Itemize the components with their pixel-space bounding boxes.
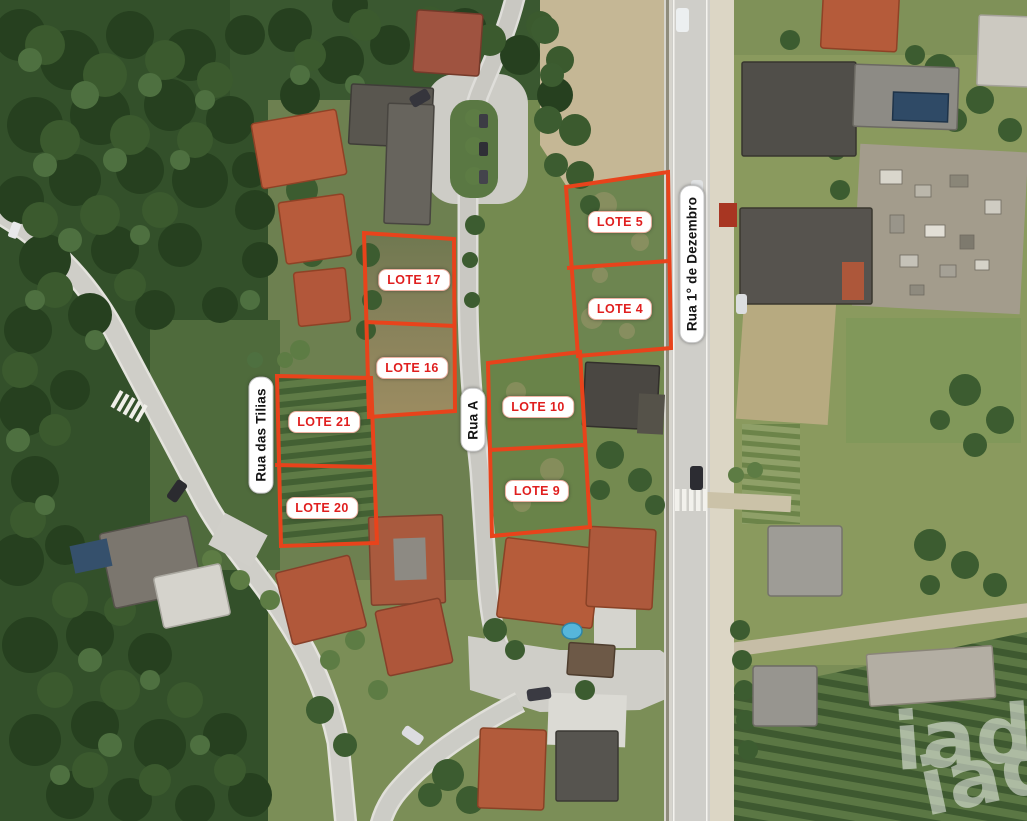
house-roof bbox=[821, 0, 900, 52]
house-section bbox=[393, 537, 426, 580]
house-roof bbox=[293, 267, 350, 326]
parked-car bbox=[479, 170, 488, 184]
lot-label-lote-5: LOTE 5 bbox=[588, 211, 652, 233]
house-roof-gray bbox=[768, 526, 842, 596]
lot-label-lote-4: LOTE 4 bbox=[588, 298, 652, 320]
lot-label-lote-20: LOTE 20 bbox=[286, 497, 358, 519]
lot-label-lote-9: LOTE 9 bbox=[505, 480, 569, 502]
aerial-lot-map: iad iad LOTE 17 LOTE 16 LOTE 21 LOTE 20 … bbox=[0, 0, 1027, 821]
warehouse-roof bbox=[742, 62, 856, 156]
lot-interior-21-20 bbox=[277, 376, 377, 546]
car bbox=[690, 466, 703, 490]
street-label-rua-a: Rua A bbox=[461, 388, 486, 452]
lot-divider-21-20 bbox=[275, 465, 373, 467]
building-roof bbox=[384, 103, 434, 225]
lot-label-lote-10: LOTE 10 bbox=[502, 396, 574, 418]
house-roof bbox=[413, 10, 483, 76]
solar-panels bbox=[893, 92, 949, 122]
van bbox=[736, 294, 747, 314]
shed-roof bbox=[842, 262, 864, 300]
house-roof-gray bbox=[753, 666, 817, 726]
street-label-rua-1-de-dezembro: Rua 1° de Dezembro bbox=[680, 185, 705, 343]
shed-roof bbox=[977, 15, 1027, 87]
road-rua-1-de-dezembro bbox=[664, 0, 734, 821]
house-roof bbox=[278, 194, 352, 265]
house-wing bbox=[637, 393, 665, 434]
lot-label-lote-21: LOTE 21 bbox=[288, 411, 360, 433]
swimming-pool bbox=[562, 623, 582, 639]
house-roof bbox=[251, 109, 347, 189]
lot-label-lote-16: LOTE 16 bbox=[376, 357, 448, 379]
car bbox=[676, 8, 689, 32]
red-container bbox=[719, 203, 737, 227]
parked-car bbox=[479, 114, 488, 128]
house-roof bbox=[478, 728, 547, 810]
house-roof bbox=[586, 526, 656, 609]
house-roof-dark bbox=[556, 731, 618, 801]
street-label-rua-das-tilias: Rua das Tilias bbox=[249, 376, 274, 493]
lot-label-lote-17: LOTE 17 bbox=[378, 269, 450, 291]
house-roof bbox=[375, 598, 453, 676]
garage-roof bbox=[567, 642, 615, 677]
house-roof bbox=[496, 537, 601, 628]
parked-car bbox=[479, 142, 488, 156]
